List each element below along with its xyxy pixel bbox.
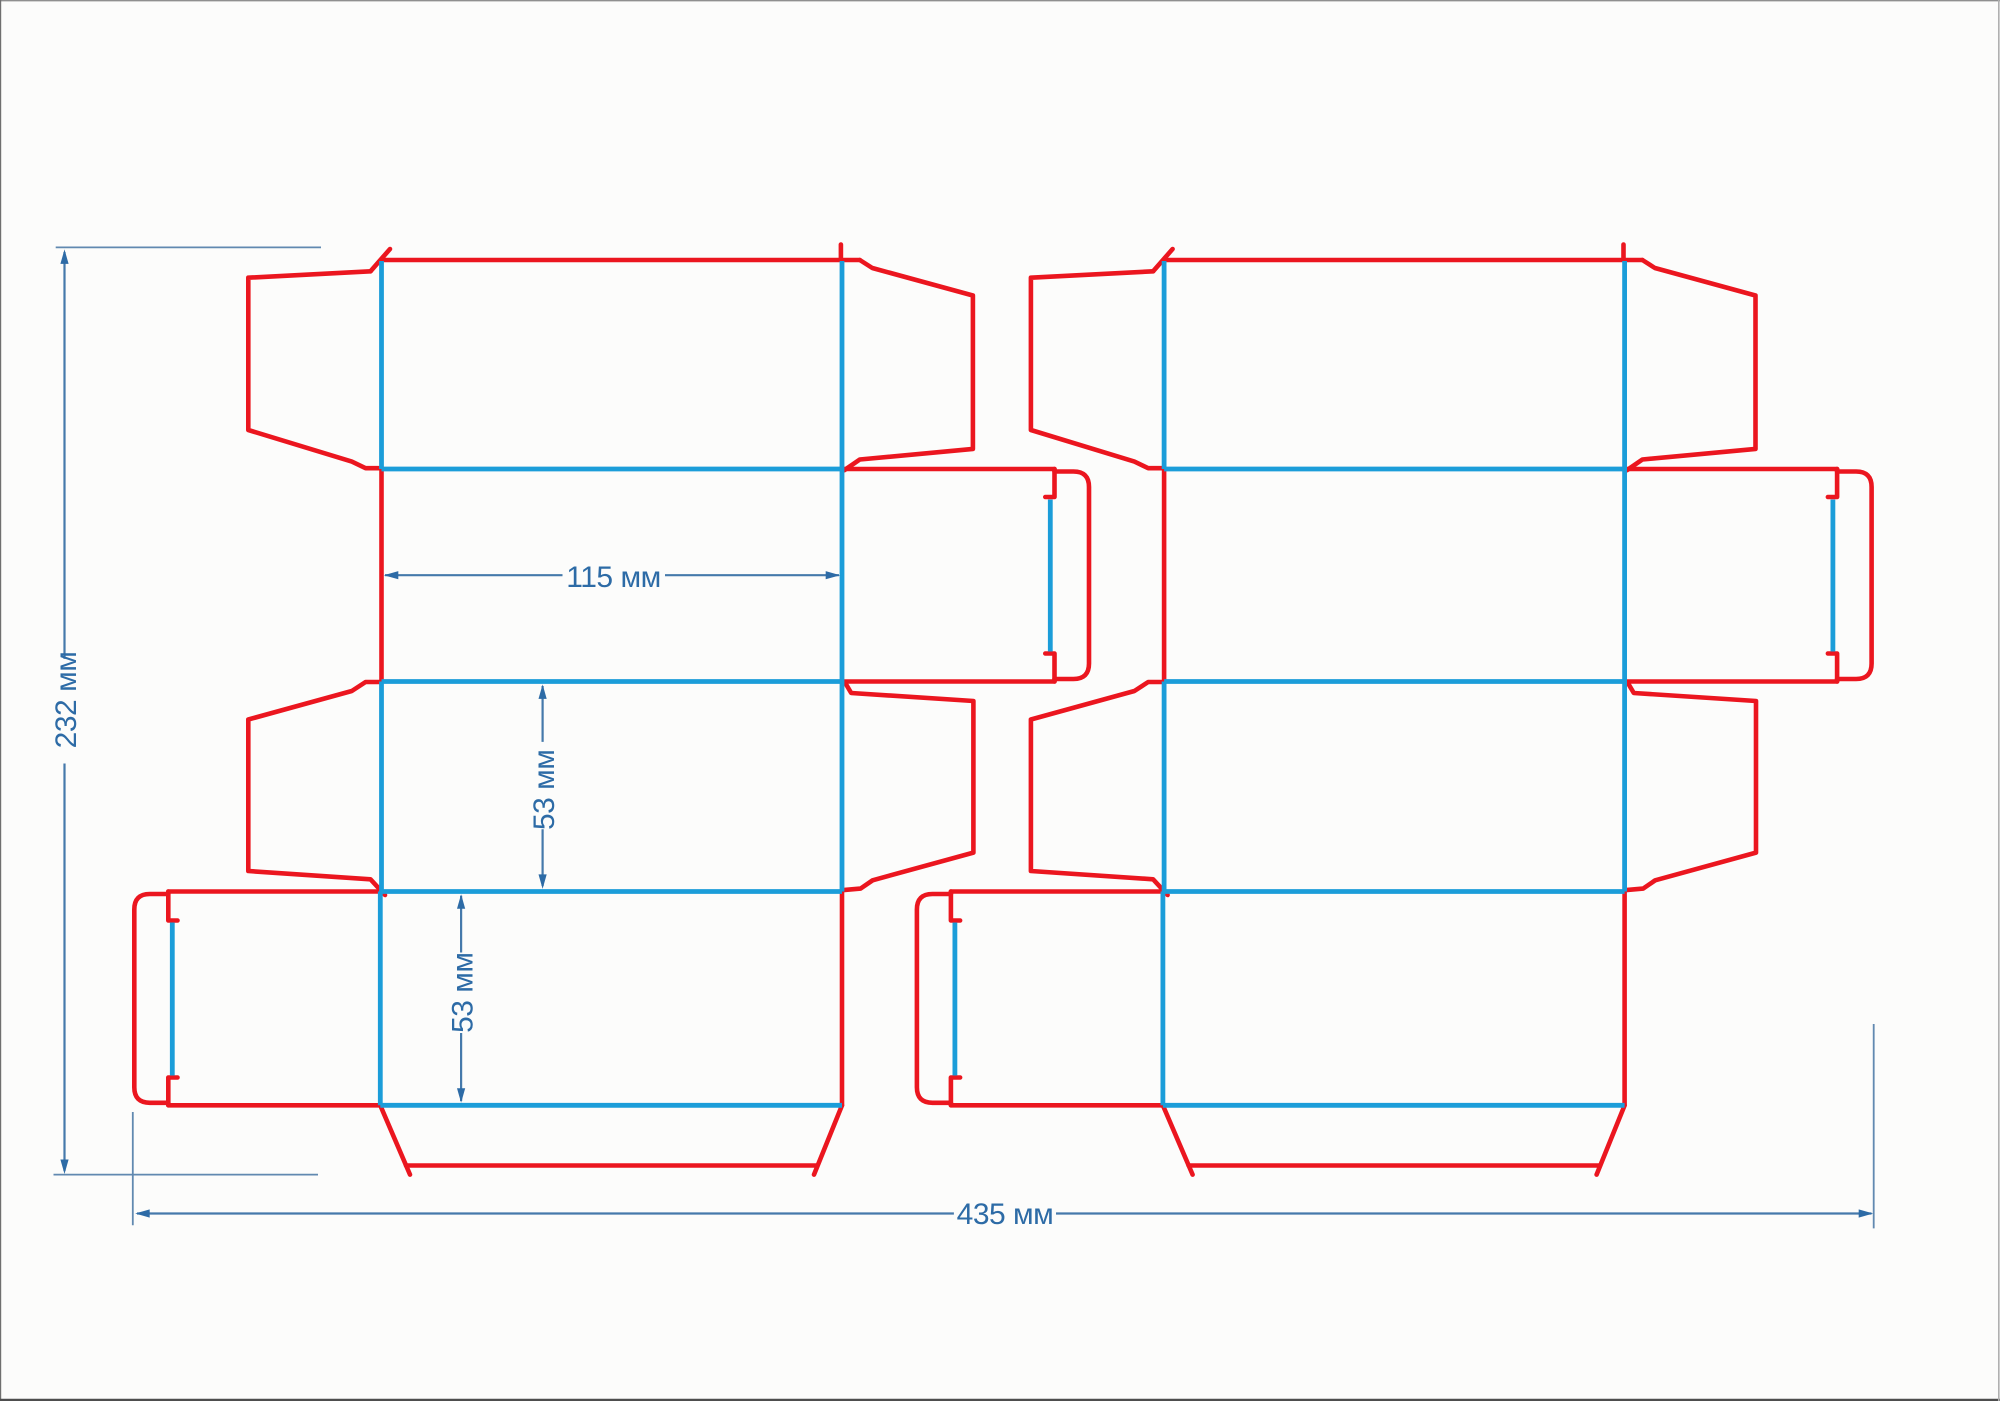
- svg-text:53 мм: 53 мм: [447, 952, 480, 1032]
- svg-text:435 мм: 435 мм: [957, 1198, 1054, 1231]
- svg-text:232 мм: 232 мм: [50, 652, 83, 749]
- svg-text:53 мм: 53 мм: [528, 750, 561, 830]
- svg-text:115 мм: 115 мм: [566, 561, 660, 594]
